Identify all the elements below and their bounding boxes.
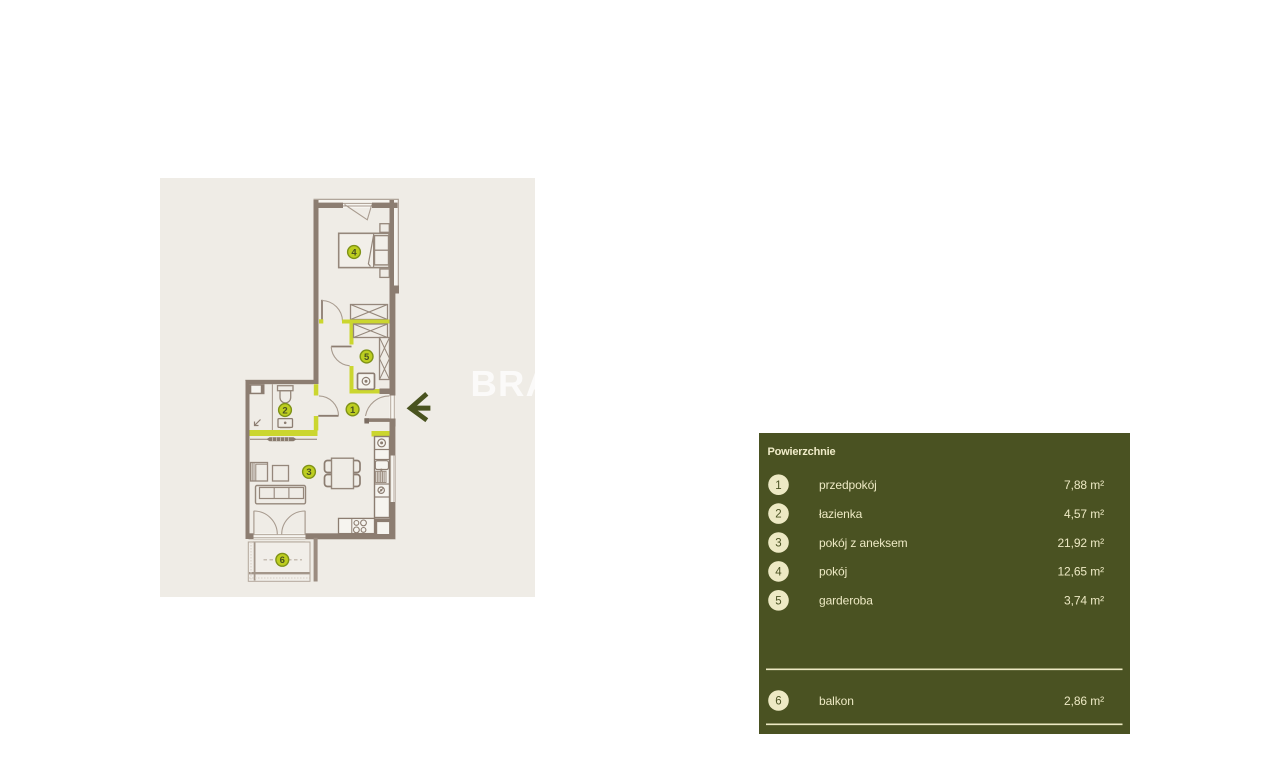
svg-text:6: 6 xyxy=(775,696,781,708)
svg-text:3: 3 xyxy=(775,538,781,550)
svg-text:12,65 m²: 12,65 m² xyxy=(1057,565,1104,579)
svg-text:21,92 m²: 21,92 m² xyxy=(1057,536,1104,550)
svg-text:2: 2 xyxy=(282,405,287,416)
svg-text:3,74 m²: 3,74 m² xyxy=(1064,594,1104,608)
svg-text:balkon: balkon xyxy=(819,694,854,708)
svg-text:4: 4 xyxy=(351,247,357,258)
svg-text:garderoba: garderoba xyxy=(819,594,873,608)
svg-text:2,86 m²: 2,86 m² xyxy=(1064,694,1104,708)
svg-text:1: 1 xyxy=(775,480,781,492)
svg-text:4: 4 xyxy=(775,567,782,579)
svg-text:3: 3 xyxy=(306,467,311,478)
svg-text:łazienka: łazienka xyxy=(819,507,863,521)
svg-text:6: 6 xyxy=(280,555,285,566)
svg-text:5: 5 xyxy=(775,595,781,607)
svg-text:przedpokój: przedpokój xyxy=(819,478,877,492)
svg-text:Powierzchnie: Powierzchnie xyxy=(768,446,836,458)
svg-text:4,57 m²: 4,57 m² xyxy=(1064,507,1104,521)
svg-text:5: 5 xyxy=(364,352,370,363)
svg-text:7,88 m²: 7,88 m² xyxy=(1064,478,1104,492)
svg-text:1: 1 xyxy=(350,405,356,416)
svg-text:pokój: pokój xyxy=(819,565,847,579)
svg-text:pokój z aneksem: pokój z aneksem xyxy=(819,536,908,550)
svg-text:2: 2 xyxy=(775,509,781,521)
